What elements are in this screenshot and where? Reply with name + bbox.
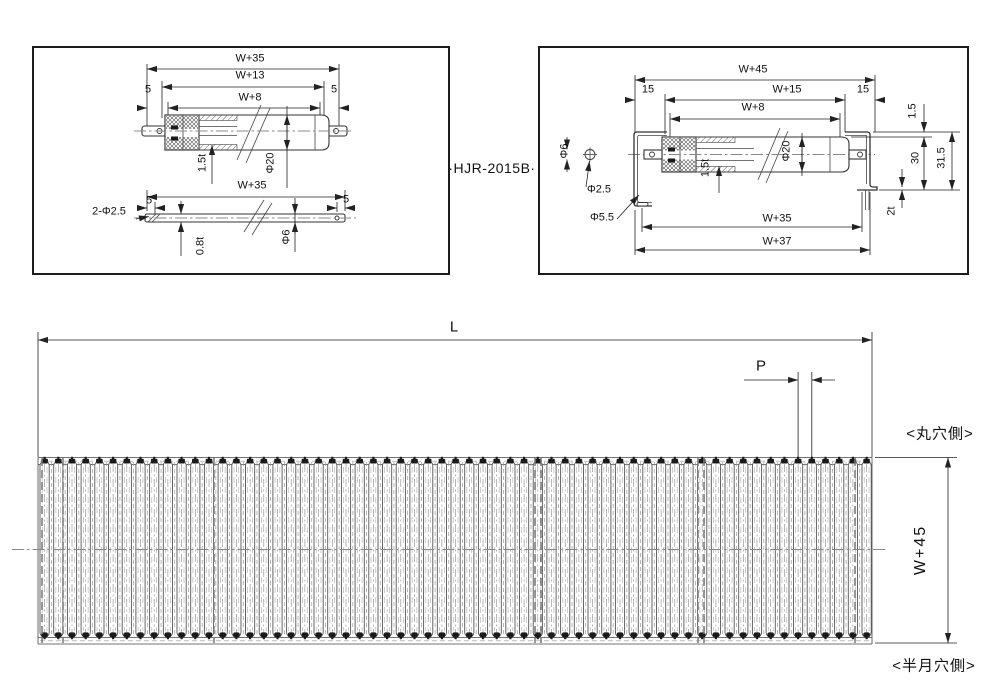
dim-w45: W+45 [738,65,767,76]
dim-w8-right: W+8 [742,103,765,114]
half-moon-hole-side-label: <半月穴側> [892,659,976,674]
dim-width-w45: W+45 [913,525,929,575]
dim-w35-top: W+35 [235,54,264,65]
model-label: ·HJR-2015B· [448,161,535,175]
dim-w15: W+15 [772,85,801,96]
dim-dia2-5: Φ2.5 [587,185,611,196]
dim-dia5-5: Φ5.5 [590,213,614,224]
dim-dia6-right: Φ6 [560,144,571,159]
drawing-sheet: W+35 W+13 W+8 5 5 1.5t Φ20 W+35 5 5 2-Φ2… [0,0,1000,692]
dim-w13: W+13 [235,71,264,82]
dim-w35-right: W+35 [762,214,791,225]
dim-five-bot-right: 5 [343,195,349,206]
dim-five-top-right: 5 [331,85,337,96]
dim-shaft-0-8t: 0.8t [196,237,207,255]
dim-length-L: L [450,320,458,335]
dim-15-right: 15 [857,85,869,96]
dim-1-5: 1.5 [908,103,919,118]
dim-dia20-r: Φ20 [782,140,793,161]
dim-15-left: 15 [642,85,654,96]
roller-detail-drawing [34,48,448,273]
dim-holes-2phi25: 2-Φ2.5 [92,207,126,218]
dim-wall-1-5t-r: 1.5t [701,159,712,177]
conveyor-plan-view [0,300,1000,692]
dim-31-5: 31.5 [937,147,948,168]
right-detail-box [538,46,969,275]
dim-30: 30 [911,152,922,164]
conveyor-plan-drawing [0,300,1000,692]
dim-w35-bottom: W+35 [237,181,266,192]
dim-w37: W+37 [762,237,791,248]
dim-dia20: Φ20 [266,152,277,173]
dim-five-bot-left: 5 [146,196,152,207]
dim-wall-1-5t: 1.5t [198,154,209,172]
dim-pitch-P: P [756,359,766,374]
dim-2t: 2t [887,206,898,215]
dim-dia6-left: Φ6 [282,230,293,245]
roller-frame-detail-drawing [540,48,967,273]
dim-five-top-left: 5 [145,85,151,96]
round-hole-side-label: <丸穴側> [906,427,974,442]
dim-w8-left: W+8 [239,93,262,104]
